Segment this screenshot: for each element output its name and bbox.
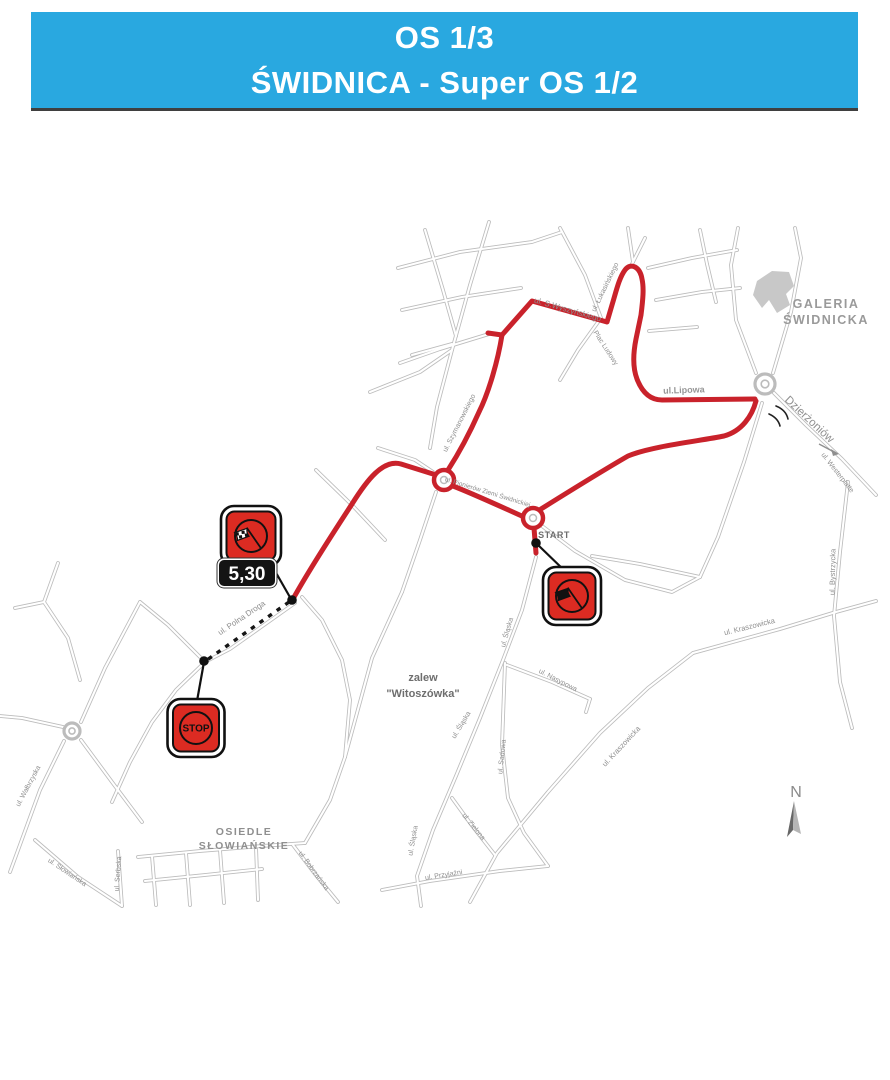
street-label: ŚWIDNICKA [783,312,869,327]
finish-sign [221,506,281,566]
road [502,663,548,866]
street-label: ul. Słowiańska [46,857,87,888]
rally-route [502,266,755,400]
street-label: ul. Bystrzycka [828,548,838,595]
street-label: GALERIA [793,297,860,311]
compass-needle-light [793,801,801,834]
road [15,602,44,608]
distance-value: 5,30 [229,564,266,585]
finish-sign-red-panel [227,512,276,561]
road [400,334,489,363]
roundabout-direction-mark [776,406,788,419]
rally-route [448,335,502,470]
building-layer [753,271,794,313]
street-label: ul. Zielona [460,812,486,842]
street-label: ul. Bobrzańska [297,850,330,892]
route-map: STOP5,30 ul. S.Wyszyńskiegoul. Szymanows… [0,0,890,1080]
street-label: ul.Lipowa [663,384,706,395]
road-casing [302,597,350,757]
road-casing [417,557,536,906]
street-label: ul. Polna Droga [216,598,267,637]
roads-fill-layer [0,222,876,906]
stop-sign-text: STOP [182,724,209,735]
flag-checker-square [245,533,248,536]
rally-route [541,401,756,509]
road [693,601,876,653]
street-label: ul. Śląska [449,709,472,740]
road [402,492,436,592]
street-label: SŁOWIAŃSKIE [199,839,290,852]
distance-plate: 5,30 [217,558,277,588]
rally-route [293,463,433,599]
road [145,869,262,881]
street-label: zalew [408,672,438,684]
street-label: "Witoszówka" [386,688,459,700]
roundabouts-layer [64,374,775,739]
flag-checker-square [236,532,239,535]
roads-casing-layer [0,222,876,906]
control-point-dot [199,656,209,666]
street-label: Dzierżoniów [782,394,836,446]
flag-checker-square [241,531,244,534]
rally-route-layer [293,266,756,599]
start-sign [543,567,601,625]
road [417,557,536,906]
street-label: ul. Westerplatte [819,452,854,495]
street-label: START [538,530,570,540]
galeria-building [753,271,794,313]
road [44,563,80,680]
street-label: Plac Ludowy [592,330,620,368]
road [398,232,562,268]
roundabout-island [69,728,75,734]
road [731,228,756,373]
north-label: N [790,784,802,801]
route-roundabout-island [530,515,537,522]
road [425,230,456,336]
street-label: ul. Pionierów Ziemi Świdnickiej [444,474,532,509]
street-label: ul. Kraszowicka [600,724,643,769]
road [302,597,350,757]
street-label: ul. Wałbrzyska [15,765,42,808]
north-arrow: N [787,784,802,837]
flag-checker-square [239,535,242,538]
road-casing [345,592,402,757]
street-label: OSIEDLE [216,826,273,838]
road-casing [700,403,762,577]
roundabout-island [761,380,769,388]
road-casing [305,757,345,843]
road [81,602,140,722]
road [81,740,142,822]
roundabout-direction-mark [769,414,780,426]
compass-needle-dark [787,801,794,837]
control-point-dot [287,595,297,605]
street-label: ul. Śląska [405,825,419,857]
stop-sign: STOP [168,699,225,757]
